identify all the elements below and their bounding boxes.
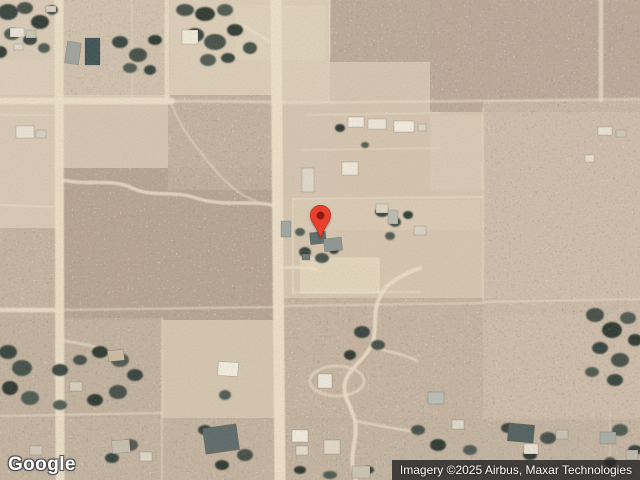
image-grain-overlay xyxy=(0,0,640,480)
satellite-imagery xyxy=(0,0,640,480)
google-logo[interactable]: Google xyxy=(8,454,76,476)
imagery-attribution: Imagery ©2025 Airbus, Maxar Technologies xyxy=(392,460,640,480)
map[interactable]: Google Imagery ©2025 Airbus, Maxar Techn… xyxy=(0,0,640,480)
location-pin-icon[interactable] xyxy=(309,204,332,240)
